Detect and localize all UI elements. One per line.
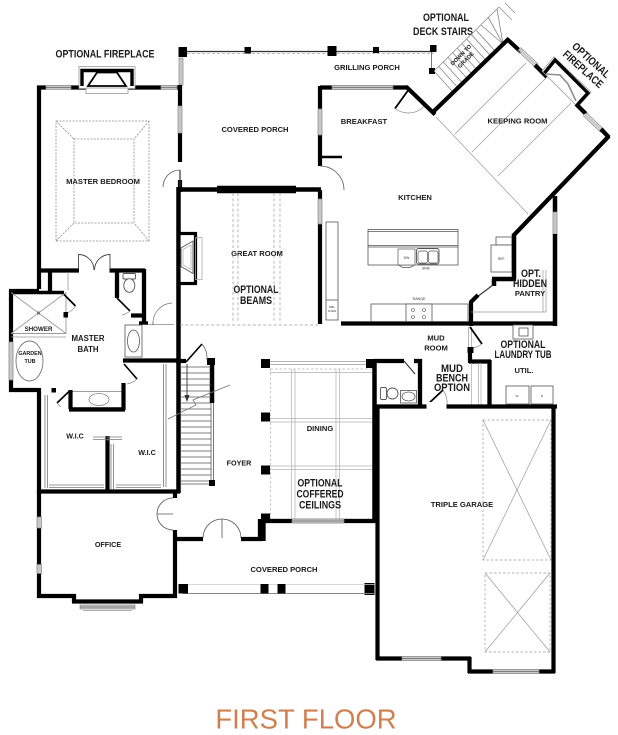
- svg-text:CEILINGS: CEILINGS: [299, 500, 341, 512]
- svg-text:FIRST FLOOR: FIRST FLOOR: [215, 704, 396, 735]
- svg-text:SINK: SINK: [422, 267, 431, 271]
- svg-text:KITCHEN: KITCHEN: [398, 193, 432, 202]
- svg-text:OVEN: OVEN: [328, 309, 337, 313]
- svg-text:RANGE: RANGE: [413, 297, 426, 301]
- svg-text:TUB: TUB: [24, 359, 35, 365]
- svg-text:KEEPING ROOM: KEEPING ROOM: [488, 117, 548, 126]
- svg-text:BATH: BATH: [77, 345, 98, 354]
- svg-text:DW: DW: [404, 256, 410, 260]
- svg-text:FOYER: FOYER: [227, 459, 253, 468]
- svg-text:GRILLING PORCH: GRILLING PORCH: [334, 63, 400, 72]
- svg-text:W.I.C: W.I.C: [138, 448, 156, 457]
- svg-text:COVERED PORCH: COVERED PORCH: [221, 125, 288, 134]
- svg-text:GREAT ROOM: GREAT ROOM: [231, 249, 283, 258]
- svg-text:BEAMS: BEAMS: [240, 295, 272, 307]
- svg-text:REF.: REF.: [498, 257, 505, 261]
- svg-text:ROOM: ROOM: [424, 344, 448, 353]
- svg-text:OPTIONAL FIREPLACE: OPTIONAL FIREPLACE: [56, 49, 155, 61]
- svg-text:MASTER: MASTER: [72, 334, 105, 343]
- svg-text:PANTRY: PANTRY: [515, 289, 545, 298]
- svg-text:SHOWER: SHOWER: [25, 326, 53, 333]
- svg-text:DECK STAIRS: DECK STAIRS: [413, 26, 473, 38]
- svg-text:DINING: DINING: [307, 424, 334, 433]
- svg-text:OFFICE: OFFICE: [95, 540, 122, 549]
- svg-text:COVERED PORCH: COVERED PORCH: [250, 565, 317, 574]
- svg-text:UTIL.: UTIL.: [515, 366, 534, 375]
- svg-text:W: W: [516, 394, 519, 398]
- svg-text:TRIPLE GARAGE: TRIPLE GARAGE: [431, 500, 493, 509]
- svg-text:BREAKFAST: BREAKFAST: [341, 117, 388, 126]
- svg-text:OPTIONAL: OPTIONAL: [423, 12, 469, 24]
- svg-text:GARDEN: GARDEN: [18, 351, 41, 357]
- svg-text:LAUNDRY TUB: LAUNDRY TUB: [495, 349, 552, 361]
- svg-text:W.I.C: W.I.C: [66, 432, 84, 441]
- svg-text:MUD: MUD: [427, 334, 445, 343]
- svg-text:MASTER BEDROOM: MASTER BEDROOM: [66, 177, 140, 186]
